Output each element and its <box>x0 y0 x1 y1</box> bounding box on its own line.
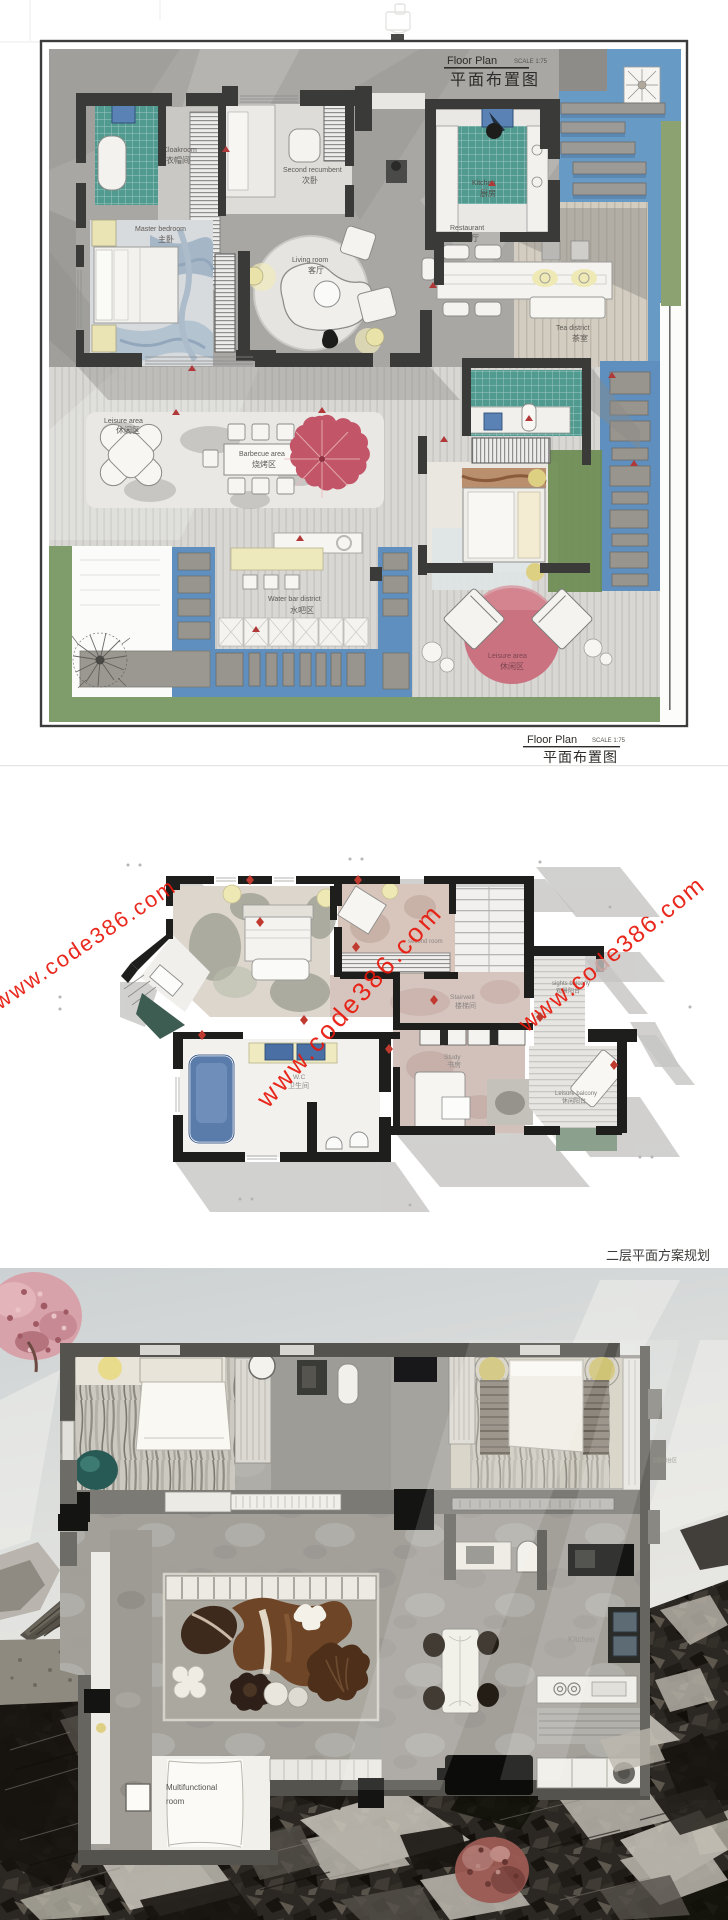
svg-text:Floor Plan: Floor Plan <box>527 734 577 746</box>
svg-text:SCALE 1:75: SCALE 1:75 <box>592 738 626 744</box>
svg-text:SCALE 1:75: SCALE 1:75 <box>514 59 548 65</box>
svg-text:Living room: Living room <box>292 257 328 264</box>
svg-text:休闲阳台: 休闲阳台 <box>562 1097 586 1105</box>
svg-text:烧烤区: 烧烤区 <box>252 459 276 469</box>
svg-text:Water bar district: Water bar district <box>268 596 321 603</box>
svg-text:平面布置图: 平面布置图 <box>543 749 618 765</box>
svg-text:Second recumbent: Second recumbent <box>283 167 342 174</box>
svg-text:Barbecue area: Barbecue area <box>239 451 285 458</box>
svg-text:room: room <box>166 1797 185 1806</box>
svg-text:Cloakroom: Cloakroom <box>163 147 197 154</box>
svg-text:Multifunctional: Multifunctional <box>166 1783 217 1792</box>
svg-text:茶室: 茶室 <box>572 333 588 343</box>
svg-text:书房: 书房 <box>447 1060 461 1069</box>
svg-text:Leisure area: Leisure area <box>104 418 143 425</box>
svg-text:次卧: 次卧 <box>302 175 318 185</box>
svg-text:休闲区: 休闲区 <box>500 661 524 671</box>
svg-text:Stairwell: Stairwell <box>450 994 475 1001</box>
svg-text:二层平面方案规划: 二层平面方案规划 <box>606 1248 710 1263</box>
svg-text:休闲区: 休闲区 <box>116 425 140 435</box>
svg-text:Restaurant: Restaurant <box>450 225 484 232</box>
svg-text:主卧阳台区: 主卧阳台区 <box>652 1457 677 1464</box>
svg-text:Study: Study <box>444 1054 461 1061</box>
svg-text:衣帽间: 衣帽间 <box>166 155 190 165</box>
svg-text:水吧区: 水吧区 <box>290 605 314 615</box>
svg-text:楼梯间: 楼梯间 <box>455 1001 476 1010</box>
svg-text:Leisure balcony: Leisure balcony <box>555 1091 597 1097</box>
svg-text:客厅: 客厅 <box>308 265 324 275</box>
svg-text:主卧: 主卧 <box>158 234 174 244</box>
svg-text:Master bedroom: Master bedroom <box>135 226 186 233</box>
svg-text:Tea district: Tea district <box>556 325 590 332</box>
svg-text:平面布置图: 平面布置图 <box>450 71 540 89</box>
svg-text:Leisure area: Leisure area <box>488 653 527 660</box>
svg-text:Floor Plan: Floor Plan <box>447 55 497 67</box>
svg-text:厨房: 厨房 <box>480 188 496 198</box>
